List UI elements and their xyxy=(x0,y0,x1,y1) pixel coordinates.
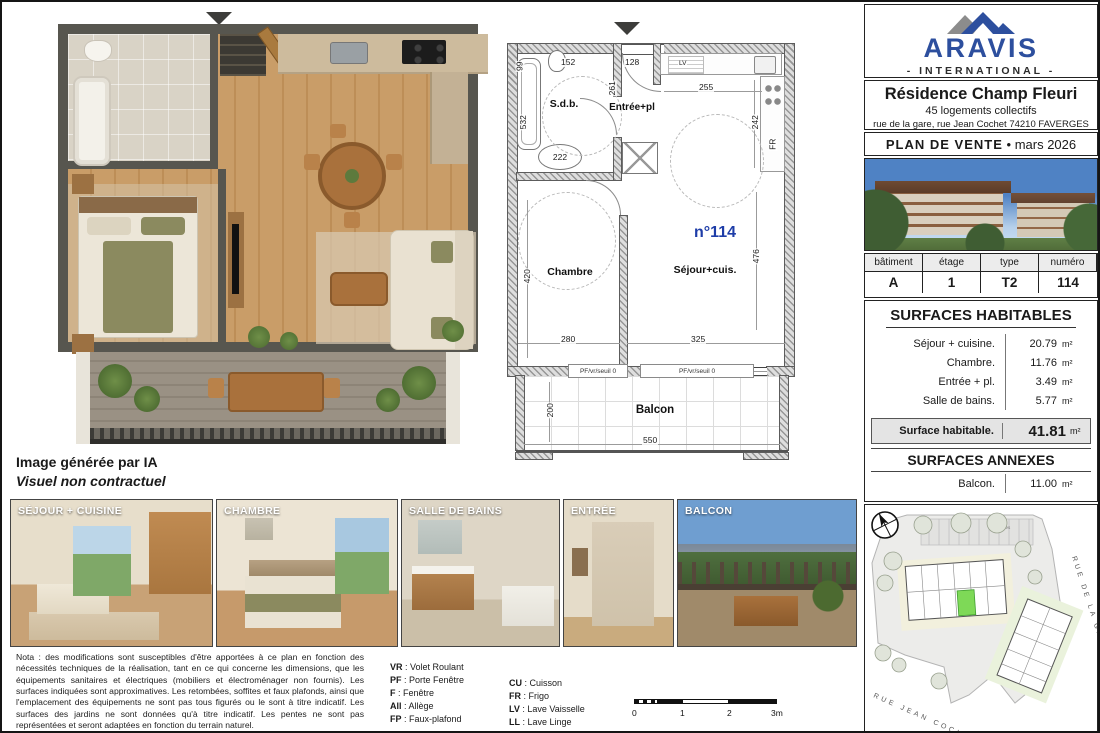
plant-shape xyxy=(280,332,298,350)
balcony-chair-shape xyxy=(208,378,224,398)
balcony-plant xyxy=(402,366,436,400)
legend-item: FFenêtre xyxy=(390,688,464,699)
legend-label: Frigo xyxy=(529,691,550,701)
annex-unit: m² xyxy=(1057,479,1083,489)
surface-label: Séjour + cuisine. xyxy=(879,338,995,350)
photo-caption: ENTRÉE xyxy=(571,505,616,517)
scale-segment xyxy=(658,699,682,704)
balcony-corner xyxy=(516,453,552,459)
photo-caption: CHAMBRE xyxy=(224,505,280,517)
ai-note-line1: Image générée par IA xyxy=(16,454,158,470)
scale-tick: 1 xyxy=(680,708,685,718)
scale-tick: 0 xyxy=(632,708,637,718)
surfaces-rows: Séjour + cuisine.20.79m² Chambre.11.76m²… xyxy=(865,334,1097,410)
annexes-title: SURFACES ANNEXES xyxy=(865,449,1097,471)
photo-strip: SÉJOUR + CUISINE CHAMBRE SALLE DE BAINS … xyxy=(10,499,858,647)
photo-entree: ENTRÉE xyxy=(563,499,674,647)
legend-item: CUCuisson xyxy=(509,678,587,689)
2d-floor-plan: LV FR 222 PF/vr/seuil 0 PF/vr/seuil 0 S.… xyxy=(502,20,802,472)
legend-sep xyxy=(396,688,404,698)
dim-152: 152 xyxy=(560,58,576,67)
legend-label: Allège xyxy=(409,701,434,711)
balcony-wall-left xyxy=(516,376,524,450)
3d-balcony xyxy=(76,352,460,444)
photo-caption: BALCON xyxy=(685,505,732,517)
annex-value: 11.00 xyxy=(1009,478,1057,490)
legend-abbr: LL xyxy=(509,717,520,727)
legend-abbr: FR xyxy=(509,691,521,701)
toilet-shape xyxy=(84,40,112,62)
balcony-plant xyxy=(134,386,160,412)
photo-sejour-cuisine: SÉJOUR + CUISINE xyxy=(10,499,213,647)
building-a xyxy=(897,553,1016,631)
doc-type-box: PLAN DE VENTEmars 2026 xyxy=(864,132,1098,156)
project-address: rue de la gare, rue Jean Cochet 74210 FA… xyxy=(865,119,1097,130)
dim-532: 532 xyxy=(519,114,528,130)
3d-divider-wall xyxy=(218,169,226,344)
surface-label: Entrée + pl. xyxy=(879,376,995,388)
photo-caption: SALLE DE BAINS xyxy=(409,505,502,517)
coffee-table-shape xyxy=(330,272,388,306)
dim-280: 280 xyxy=(560,335,576,344)
wall-bottom xyxy=(767,367,794,376)
entry-closet-shape xyxy=(220,34,266,76)
scale-bar: 0 1 2 3m xyxy=(634,699,794,723)
legend-label: Cuisson xyxy=(530,678,563,688)
dim-200: 200 xyxy=(546,402,555,418)
legend-column-1: VRVolet Roulant PFPorte Fenêtre FFenêtre… xyxy=(390,662,464,725)
balcony-railing xyxy=(90,428,446,444)
street-rue-jean-cochet: RUE JEAN COCHET xyxy=(872,692,979,732)
surface-row: Salle de bains.5.77m² xyxy=(879,391,1083,410)
wall-right xyxy=(785,44,794,376)
hob-shape xyxy=(763,80,782,110)
aravis-logo-icon xyxy=(945,11,1017,35)
wall-left xyxy=(508,44,517,376)
scale-tick: 2 xyxy=(727,708,732,718)
legend-label: Porte Fenêtre xyxy=(409,675,464,685)
surfaces-title: SURFACES HABITABLES xyxy=(865,301,1097,324)
legend-abbr: VR xyxy=(390,662,403,672)
legend-column-2: CUCuisson FRFrigo LVLave Vaisselle LLLav… xyxy=(509,678,587,733)
dim-242: 242 xyxy=(751,114,760,130)
legend-item: LVLave Vaisselle xyxy=(509,704,587,715)
legend-item: LLLave Linge xyxy=(509,717,587,728)
scale-segment xyxy=(729,699,777,704)
kitchen-sink-shape xyxy=(330,42,368,64)
3d-floor-plan xyxy=(10,6,498,454)
legend-label: Lave Linge xyxy=(528,717,572,727)
balcony-plant xyxy=(98,364,132,398)
brand-name: ARAVIS xyxy=(865,35,1097,62)
unit-header-etage: étage xyxy=(923,254,981,272)
surface-total-row: Surface habitable.41.81m² xyxy=(871,418,1091,444)
legend-item: PFPorte Fenêtre xyxy=(390,675,464,686)
unit-value-numero: 114 xyxy=(1039,272,1097,293)
dim-99: 99 xyxy=(515,61,524,72)
annex-row: Balcon.11.00m² xyxy=(879,474,1083,493)
kitchen-tall-cabinet xyxy=(430,72,468,164)
total-unit: m² xyxy=(1066,426,1090,436)
surface-row: Chambre.11.76m² xyxy=(879,353,1083,372)
wall-sdb-right xyxy=(614,138,621,180)
doc-date: mars 2026 xyxy=(1003,137,1076,152)
unit-value-etage: 1 xyxy=(923,272,981,293)
plan-de-vente-sheet: Image générée par IA Visuel non contract… xyxy=(0,0,1100,733)
legend-abbr: PF xyxy=(390,675,402,685)
dim-476: 476 xyxy=(752,248,761,264)
highlighted-unit xyxy=(957,590,976,616)
scale-segment xyxy=(634,699,658,704)
bed-pillow xyxy=(141,217,185,235)
dim-550: 550 xyxy=(642,436,658,445)
legend-abbr: LV xyxy=(509,704,520,714)
unit-id-table: bâtiment étage type numéro A 1 T2 114 xyxy=(864,253,1098,298)
street-rue-de-la-gare: RUE DE LA GARE xyxy=(1070,555,1097,655)
legend-sep xyxy=(402,714,410,724)
photo-caption: SÉJOUR + CUISINE xyxy=(18,505,122,517)
unit-value-type: T2 xyxy=(981,272,1039,293)
closet-shape xyxy=(622,142,658,174)
surface-value: 11.76 xyxy=(1009,357,1057,369)
plant-shape xyxy=(248,326,270,348)
photo-salle-de-bains: SALLE DE BAINS xyxy=(401,499,560,647)
bed-headboard xyxy=(79,197,197,213)
scale-tick: 3m xyxy=(771,708,783,718)
3d-apartment xyxy=(58,24,478,352)
tv-shape xyxy=(232,224,239,294)
balcony-plant xyxy=(376,388,400,412)
legend-abbr: CU xyxy=(509,678,522,688)
room-label-balcon: Balcon xyxy=(620,404,690,416)
dim-261: 261 xyxy=(608,80,617,96)
photo-balcon: BALCON xyxy=(677,499,857,647)
total-value: 41.81 xyxy=(1008,423,1066,440)
legend-label: Faux-plafond xyxy=(409,714,462,724)
annex-label: Balcon. xyxy=(879,478,995,490)
chair-shape xyxy=(386,154,402,170)
sofa-pillow xyxy=(431,241,453,263)
north-arrow-icon xyxy=(614,22,640,35)
plant-shape xyxy=(442,320,464,342)
unit-header-batiment: bâtiment xyxy=(865,254,923,272)
chair-shape xyxy=(304,154,320,170)
room-label-chambre: Chambre xyxy=(530,266,610,278)
surface-unit: m² xyxy=(1057,396,1083,406)
surface-unit: m² xyxy=(1057,377,1083,387)
window-label: PF/vr/seuil 0 xyxy=(568,364,628,378)
surface-label: Chambre. xyxy=(879,357,995,369)
dim-255: 255 xyxy=(698,83,714,92)
annex-rows: Balcon.11.00m² xyxy=(865,472,1097,493)
legend-abbr: FP xyxy=(390,714,402,724)
surfaces-box: SURFACES HABITABLES Séjour + cuisine.20.… xyxy=(864,300,1098,502)
wall-chambre-sejour xyxy=(620,216,627,367)
dim-420: 420 xyxy=(523,268,532,284)
surface-unit: m² xyxy=(1057,339,1083,349)
ai-note-line2: Visuel non contractuel xyxy=(16,473,166,489)
legend-sep xyxy=(402,675,410,685)
chair-shape xyxy=(344,212,360,228)
legend-sep xyxy=(521,691,529,701)
compass-icon xyxy=(872,512,898,538)
nightstand-shape xyxy=(72,334,94,354)
brand-tagline: - INTERNATIONAL - xyxy=(865,65,1097,77)
project-subtitle: 45 logements collectifs xyxy=(865,105,1097,117)
dim-222: 222 xyxy=(552,153,568,162)
balcony-corner xyxy=(744,453,788,459)
total-label: Surface habitable. xyxy=(872,425,994,437)
legend-item: VRVolet Roulant xyxy=(390,662,464,673)
site-plan-map: 30 places xyxy=(865,505,1097,732)
label-frigo: FR xyxy=(768,138,777,151)
surface-row: Entrée + pl.3.49m² xyxy=(879,372,1083,391)
project-title-box: Résidence Champ Fleuri 45 logements coll… xyxy=(864,80,1098,130)
legend-label: Fenêtre xyxy=(403,688,434,698)
cooktop-shape xyxy=(402,40,446,64)
project-title: Résidence Champ Fleuri xyxy=(865,85,1097,104)
photo-chambre: CHAMBRE xyxy=(216,499,398,647)
dim-325: 325 xyxy=(690,335,706,344)
room-label-sdb: S.d.b. xyxy=(534,98,594,110)
wall-sdb-bottom xyxy=(517,173,620,180)
dim-128: 128 xyxy=(624,58,640,67)
building-photo xyxy=(864,158,1098,251)
surface-row: Séjour + cuisine.20.79m² xyxy=(879,334,1083,353)
scale-segment xyxy=(682,699,729,704)
surface-value: 20.79 xyxy=(1009,338,1057,350)
surface-label: Salle de bains. xyxy=(879,395,995,407)
balcony-table-shape xyxy=(228,372,324,412)
legend-abbr: All xyxy=(390,701,402,711)
unit-header-numero: numéro xyxy=(1039,254,1097,272)
doc-type: PLAN DE VENTE xyxy=(886,137,1003,152)
legend-label: Volet Roulant xyxy=(410,662,464,672)
surface-unit: m² xyxy=(1057,358,1083,368)
legend-item: FRFrigo xyxy=(509,691,587,702)
balcony-wall-right xyxy=(780,376,788,450)
legend-sep xyxy=(402,701,409,711)
balcony-chair-shape xyxy=(324,378,340,398)
legend-item: AllAllège xyxy=(390,701,464,712)
legend-sep xyxy=(520,717,528,727)
unit-header-type: type xyxy=(981,254,1039,272)
dim-lv: LV xyxy=(678,61,687,68)
wall-bottom xyxy=(508,367,574,376)
legend-sep xyxy=(403,662,411,672)
kitchen-sink xyxy=(754,56,776,74)
window-label: PF/vr/seuil 0 xyxy=(640,364,754,378)
nightstand-shape xyxy=(72,174,94,194)
unit-number-label: n°114 xyxy=(670,224,760,242)
bed-shape xyxy=(78,196,198,338)
site-plan-box: 30 places xyxy=(864,504,1098,733)
room-label-sejour: Séjour+cuis. xyxy=(660,264,750,276)
bed-duvet xyxy=(103,241,173,333)
unit-id-grid: bâtiment étage type numéro A 1 T2 114 xyxy=(865,254,1097,293)
3d-kitchen-counter xyxy=(278,34,488,74)
legend-item: FPFaux-plafond xyxy=(390,714,464,725)
room-label-entree: Entrée+pl xyxy=(600,102,664,113)
logo-box: ARAVIS - INTERNATIONAL - xyxy=(864,4,1098,78)
surface-value: 5.77 xyxy=(1009,395,1057,407)
surface-value: 3.49 xyxy=(1009,376,1057,388)
surfaces-title-rule xyxy=(886,327,1076,328)
legend-label: Lave Vaisselle xyxy=(527,704,584,714)
bed-pillow xyxy=(87,217,131,235)
title-block-panel: ARAVIS - INTERNATIONAL - Résidence Champ… xyxy=(862,2,1100,731)
unit-value-batiment: A xyxy=(865,272,923,293)
legend-sep xyxy=(522,678,530,688)
bathtub-shape xyxy=(73,76,111,166)
chair-shape xyxy=(330,124,346,138)
nota-text: Nota : des modifications sont susceptibl… xyxy=(16,652,364,731)
dining-plant xyxy=(345,169,359,183)
